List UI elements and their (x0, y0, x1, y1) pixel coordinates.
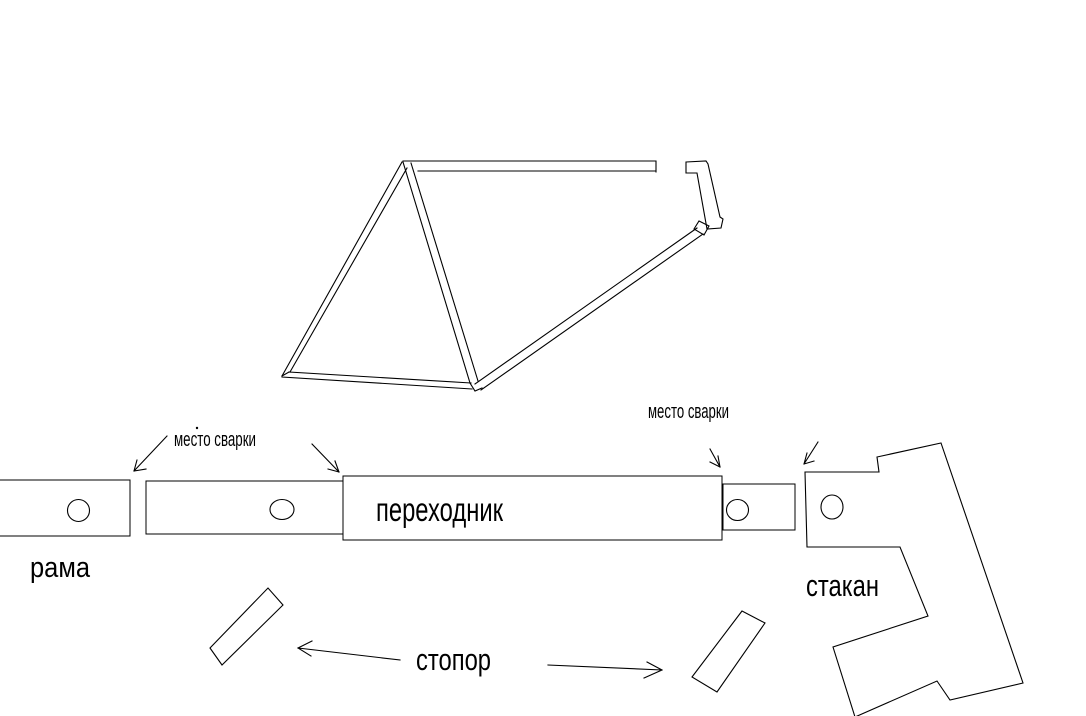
head-tube-piece (686, 161, 723, 229)
adapter-label: переходник (376, 491, 503, 528)
weld-site-label-left: место сварки (174, 429, 256, 451)
bottom-bracket-cap (470, 383, 482, 391)
stopper-label: стопор (416, 642, 491, 677)
chain-stay (475, 228, 703, 390)
bottom-tube (282, 372, 472, 389)
weld-arrow-cup-joint (804, 442, 818, 464)
top-tube (403, 161, 656, 172)
cup-hole (821, 495, 843, 519)
stopper-arrow-left (298, 641, 400, 660)
diagram-svg: место сварки место сварки рама переходни… (0, 0, 1086, 716)
seat-tube (403, 162, 478, 383)
paint-canvas: место сварки место сварки рама переходни… (0, 0, 1086, 716)
down-tube (282, 162, 407, 376)
weld-site-label-right: место сварки (648, 401, 729, 423)
cup-label: стакан (806, 568, 879, 603)
stopper-left-bar (210, 588, 283, 665)
bicycle-frame-drawing (282, 161, 723, 391)
link-plate (146, 481, 343, 534)
frame-label: рама (30, 552, 91, 584)
weld-arrow-adapter-right-joint (710, 449, 720, 467)
text-labels: место сварки место сварки рама переходни… (30, 401, 879, 677)
stopper-arrow-right (548, 662, 662, 678)
link-plate-hole (270, 500, 294, 520)
stopper-right-bar (692, 611, 765, 692)
stub-plate (723, 484, 795, 530)
stub-plate-hole (727, 500, 749, 521)
annotations (134, 427, 818, 678)
frame-plate-hole (68, 500, 90, 522)
weld-arrow-frame-joint (134, 436, 167, 471)
weld-arrow-adapter-left-joint (312, 444, 339, 472)
frame-plate (0, 480, 130, 536)
